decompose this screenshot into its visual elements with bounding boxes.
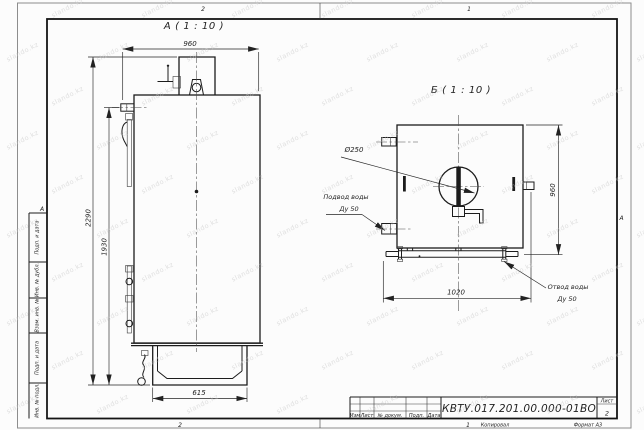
titleblock-col-docnum: № докум. xyxy=(377,413,403,419)
drawing-sheet: 2 1 2 1 А А Подп. и дата Инв. № дубл. Вз… xyxy=(0,0,644,430)
dim-b-manifold: 1020 xyxy=(383,192,531,303)
view-b: Б ( 1 : 10 ) xyxy=(323,85,588,312)
hinge-bar xyxy=(127,266,131,333)
frame-cell-podp-data-1: Подп. и дата xyxy=(35,220,41,254)
view-a: А ( 1 : 10 ) xyxy=(85,21,264,402)
titleblock-col-data: Дата xyxy=(427,413,441,419)
front-plug xyxy=(195,190,199,194)
dim-b-manifold-value: 1020 xyxy=(447,289,465,297)
titleblock-sheet-label: Лист xyxy=(600,399,615,405)
copied-label: Копировал xyxy=(481,423,510,429)
dim-a-height-stub-value: 1930 xyxy=(101,238,109,256)
zone-left: А xyxy=(39,206,44,213)
dim-a-height-stub: 1930 xyxy=(101,108,120,386)
inlet-label-line2: Ду 50 xyxy=(338,205,358,213)
titleblock-doc-number: КВТУ.017.201.00.000-01ВО xyxy=(442,403,596,415)
smoke-box xyxy=(179,57,215,95)
dim-a-width-value: 960 xyxy=(183,40,197,48)
view-b-title: Б ( 1 : 10 ) xyxy=(431,85,491,96)
view-a-title: А ( 1 : 10 ) xyxy=(163,21,224,32)
door-handle-hook xyxy=(122,122,127,147)
callout-chimney-diameter: Ø250 xyxy=(341,146,475,193)
callout-chimney-diameter-value: Ø250 xyxy=(344,146,364,154)
return-manifold xyxy=(386,247,518,262)
latch-ring xyxy=(138,378,146,386)
titleblock-col-list: Лист xyxy=(360,413,375,419)
ash-base xyxy=(153,346,247,385)
frame-cell-vzam-inv: Взам. инв. № xyxy=(35,299,41,333)
dim-a-height-overall-value: 2290 xyxy=(85,209,93,227)
stub-right xyxy=(523,182,534,190)
zone-top-right: 1 xyxy=(467,6,471,13)
frame-cell-inv-podl: Инв. № подл. xyxy=(35,383,41,418)
titleblock-sheet-number: 2 xyxy=(605,410,609,418)
frame-cell-podp-data-2: Подп. и дата xyxy=(35,341,41,375)
boiler-body-front xyxy=(134,95,260,343)
frame-cell-inv-dubl: Инв. № дубл. xyxy=(35,263,41,297)
callout-inlet: Подвод воды Ду 50 xyxy=(323,193,385,231)
drawing-canvas: 2 1 2 1 А А Подп. и дата Инв. № дубл. Вз… xyxy=(0,0,644,430)
outlet-label-line1: Отвод воды xyxy=(548,283,589,291)
zone-top-left: 2 xyxy=(201,6,205,13)
zone-right: А xyxy=(618,215,623,222)
inlet-label-line1: Подвод воды xyxy=(323,193,368,201)
title-block: Изм Лист № докум. Подп. Дата КВТУ.017.20… xyxy=(350,397,617,429)
callout-outlet: Отвод воды Ду 50 xyxy=(504,262,588,304)
drawing-frame: 2 1 2 1 А А xyxy=(18,3,632,429)
chimney-damper-plate xyxy=(456,168,461,207)
dim-a-base-width: 615 xyxy=(153,388,247,403)
dim-a-base-width-value: 615 xyxy=(192,389,206,397)
drain-pipe xyxy=(465,210,484,224)
dim-a-height-overall: 2290 xyxy=(85,57,178,385)
frame-left-column: Подп. и дата Инв. № дубл. Взам. инв. № П… xyxy=(29,213,47,419)
latch-handle xyxy=(143,355,145,378)
zone-bottom-left: 2 xyxy=(178,422,182,429)
titleblock-col-izm: Изм xyxy=(350,413,360,419)
format-label: Формат А3 xyxy=(574,423,602,429)
zone-bottom-right: 1 xyxy=(466,422,470,429)
outlet-label-line2: Ду 50 xyxy=(556,295,576,303)
titleblock-col-podp: Подп. xyxy=(409,413,424,419)
door-handle-bar xyxy=(127,120,131,187)
dim-b-height-value: 960 xyxy=(549,183,557,197)
